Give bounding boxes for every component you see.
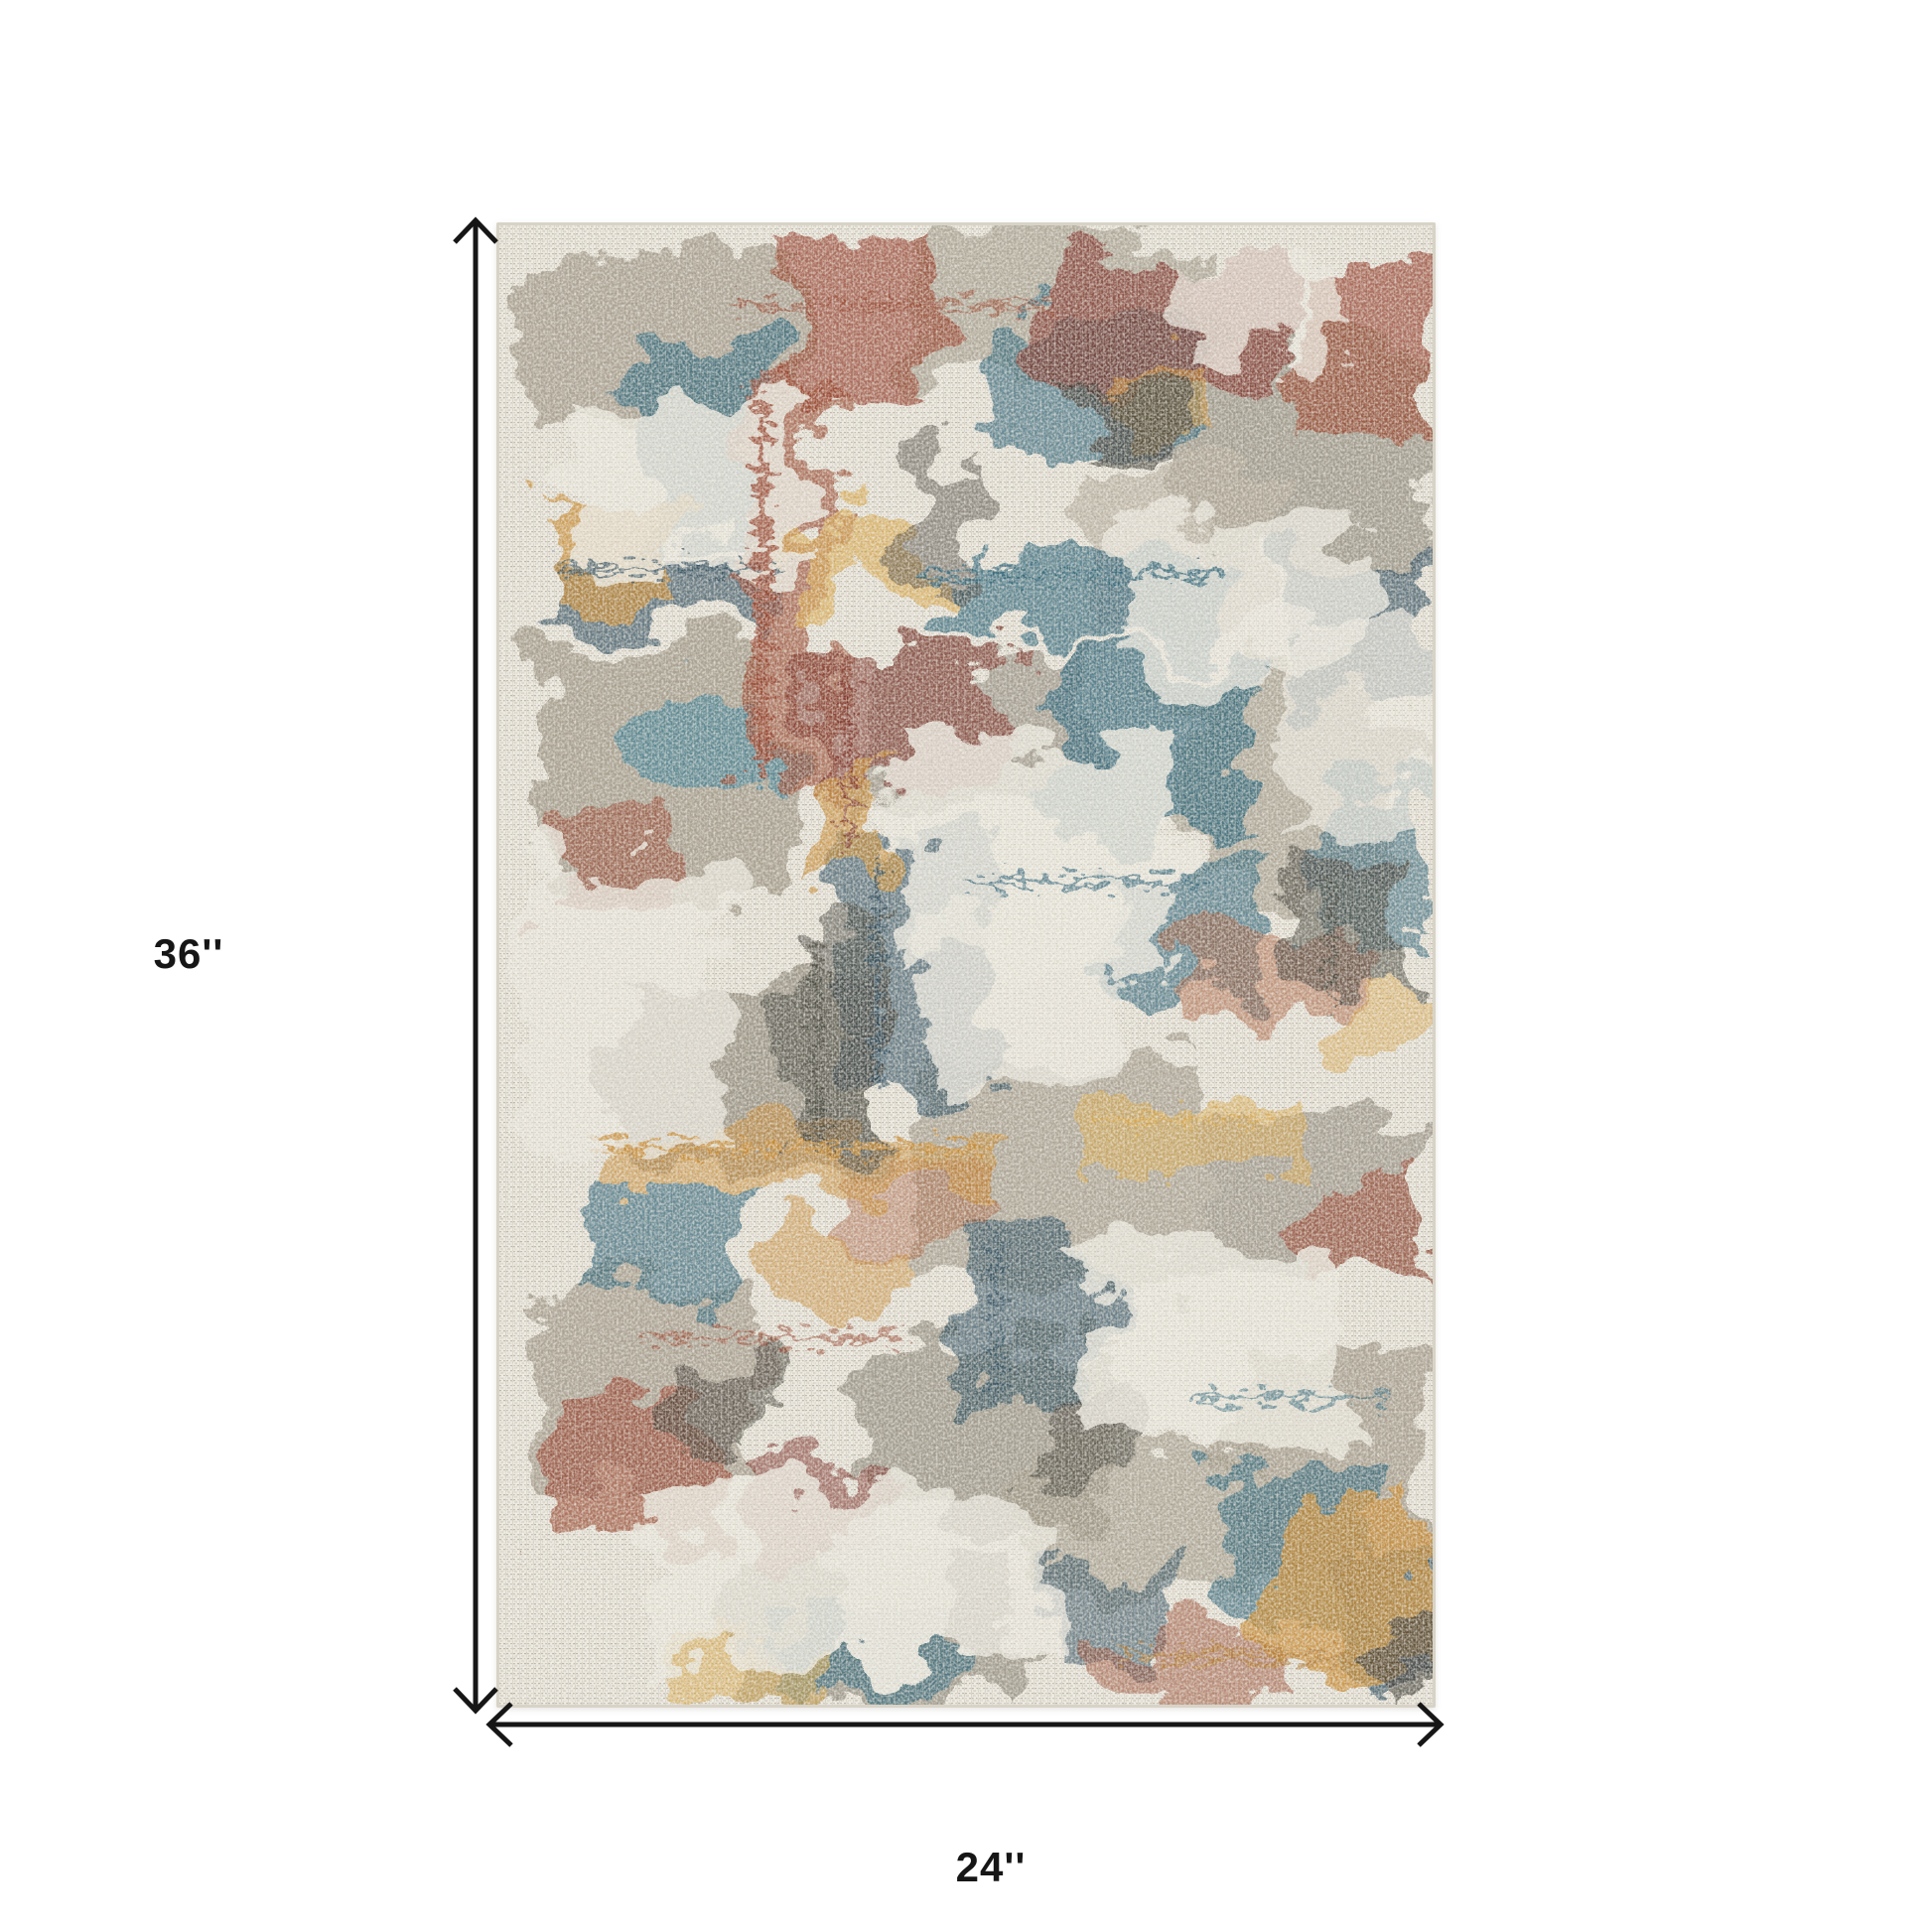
product-dimensions-figure: 36'' 24'' bbox=[0, 0, 1932, 1932]
rug-texture bbox=[496, 222, 1436, 1708]
height-dimension-arrow bbox=[446, 208, 505, 1723]
width-dimension-arrow bbox=[480, 1695, 1450, 1754]
width-label: 24'' bbox=[911, 1843, 1070, 1892]
height-label: 36'' bbox=[109, 929, 268, 979]
rug-image bbox=[496, 222, 1436, 1708]
